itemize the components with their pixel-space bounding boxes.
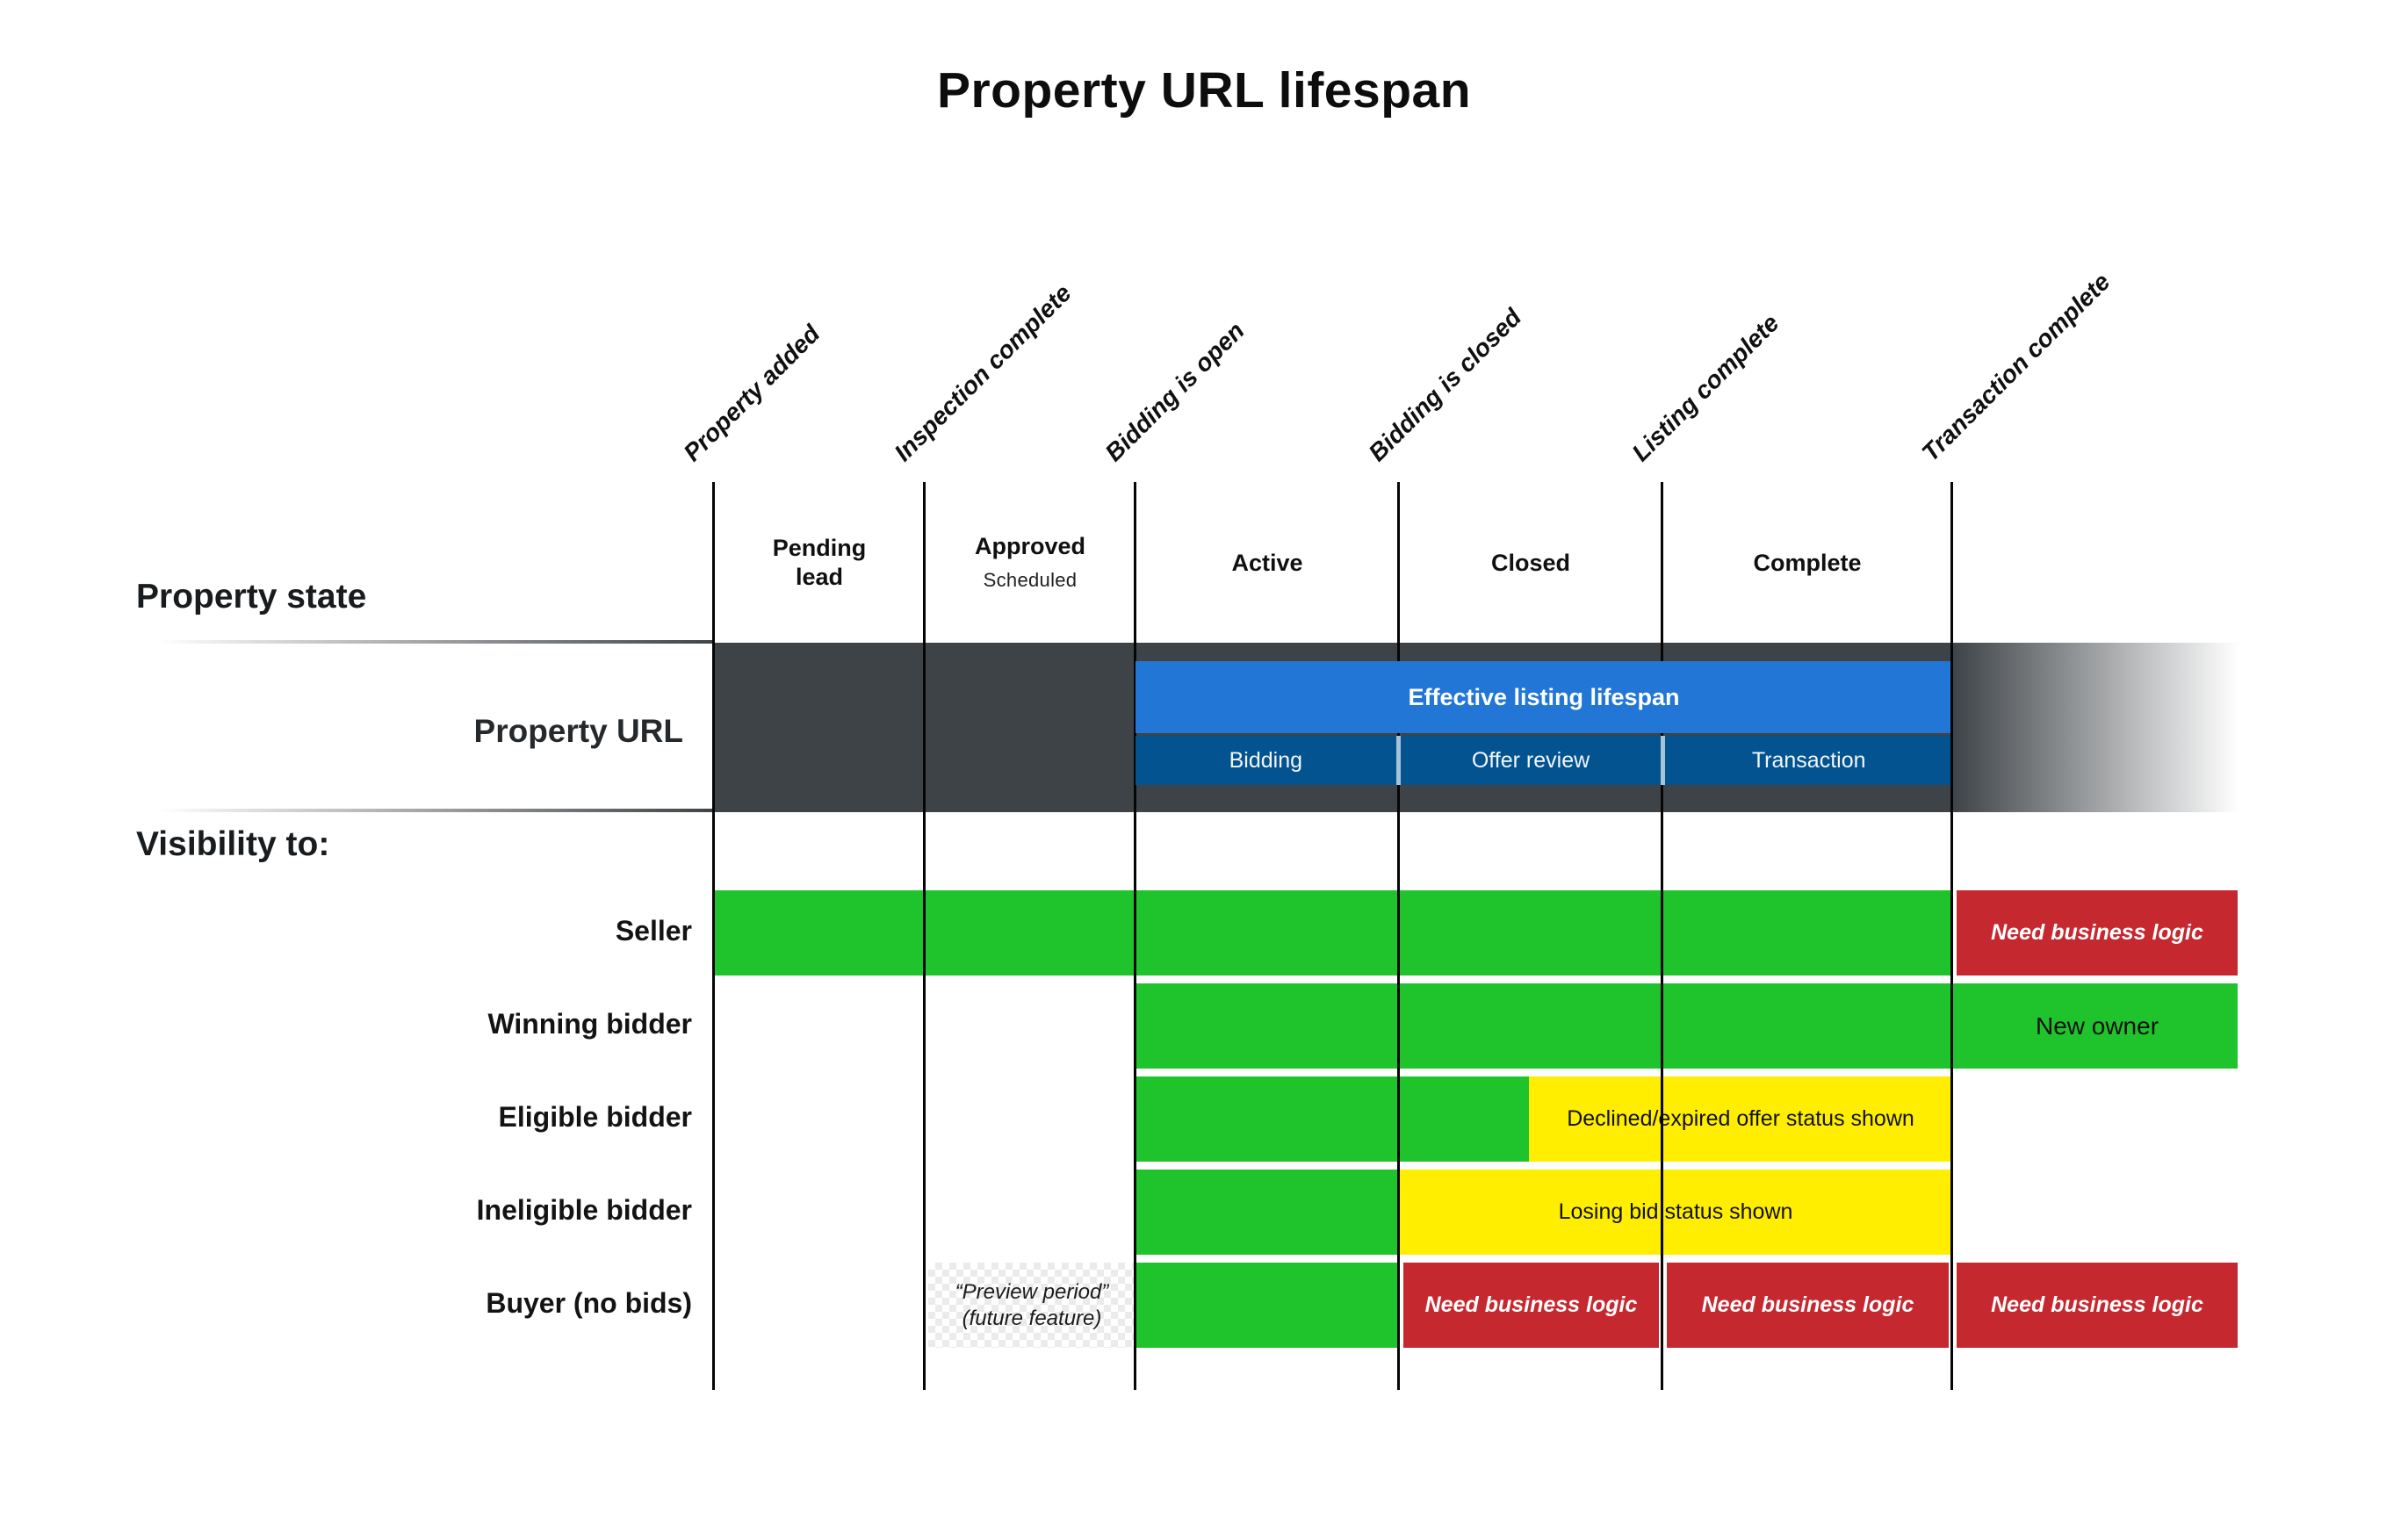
buyer-visible-bar: [1136, 1263, 1399, 1348]
ineligible-bidder-visible-bar: [1136, 1170, 1399, 1255]
phase-offer-review: Offer review: [1401, 736, 1662, 785]
milestone-line-bidding-closed: [1397, 482, 1400, 1390]
milestone-line-transaction-complete: [1950, 482, 1953, 1390]
row-label-winning-bidder: Winning bidder: [0, 1008, 692, 1040]
phase-bidding: Bidding: [1136, 736, 1396, 785]
visibility-section-label: Visibility to:: [136, 825, 329, 864]
milestone-label-inspection-complete: Inspection complete: [889, 279, 1077, 467]
seller-visible-bar: [714, 890, 1952, 975]
milestone-line-bidding-open: [1134, 482, 1136, 1390]
property-url-band-fade: [1952, 643, 2239, 812]
effective-listing-lifespan-bar: Effective listing lifespan: [1136, 661, 1952, 733]
band-top-edge-line: [158, 640, 714, 644]
milestone-label-property-added: Property added: [678, 320, 825, 467]
buyer-need-logic-bar-1: Need business logic: [1403, 1263, 1659, 1348]
phase-transaction: Transaction: [1665, 736, 1952, 785]
state-active: Active: [1136, 523, 1399, 602]
state-closed: Closed: [1399, 523, 1662, 602]
milestone-line-listing-complete: [1661, 482, 1663, 1390]
buyer-need-logic-bar-3: Need business logic: [1957, 1263, 2238, 1348]
milestone-line-property-added: [712, 482, 715, 1390]
state-approved-sub: Scheduled: [984, 565, 1078, 594]
eligible-bidder-visible-bar: [1136, 1076, 1529, 1162]
new-owner-note: New owner: [1957, 983, 2238, 1069]
row-label-seller: Seller: [0, 915, 692, 947]
state-complete: Complete: [1662, 523, 1952, 602]
row-label-buyer-no-bids: Buyer (no bids): [0, 1287, 692, 1320]
row-label-ineligible-bidder: Ineligible bidder: [0, 1194, 692, 1227]
lifespan-phase-bar: Bidding Offer review Transaction: [1136, 736, 1952, 785]
milestone-line-inspection-complete: [923, 482, 926, 1390]
property-url-label: Property URL: [0, 713, 683, 750]
state-approved: Approved Scheduled: [925, 523, 1136, 602]
seller-need-logic-bar: Need business logic: [1957, 890, 2238, 975]
diagram-canvas: Property URL lifespan Property added Ins…: [0, 0, 2408, 1519]
milestone-label-listing-complete: Listing complete: [1626, 309, 1784, 467]
preview-period-box: “Preview period” (future feature): [928, 1263, 1136, 1348]
state-pending-lead: Pending lead: [714, 523, 925, 602]
eligible-bidder-status-bar: Declined/expired offer status shown: [1529, 1076, 1952, 1162]
band-bottom-edge-line: [158, 809, 714, 812]
milestone-label-bidding-closed: Bidding is closed: [1363, 303, 1527, 467]
row-label-eligible-bidder: Eligible bidder: [0, 1101, 692, 1134]
page-title: Property URL lifespan: [0, 61, 2408, 119]
buyer-need-logic-bar-2: Need business logic: [1667, 1263, 1949, 1348]
property-state-label: Property state: [136, 578, 366, 616]
ineligible-bidder-status-bar: Losing bid status shown: [1399, 1170, 1952, 1255]
milestone-label-bidding-open: Bidding is open: [1099, 317, 1250, 467]
milestone-label-transaction-complete: Transaction complete: [1916, 268, 2116, 467]
